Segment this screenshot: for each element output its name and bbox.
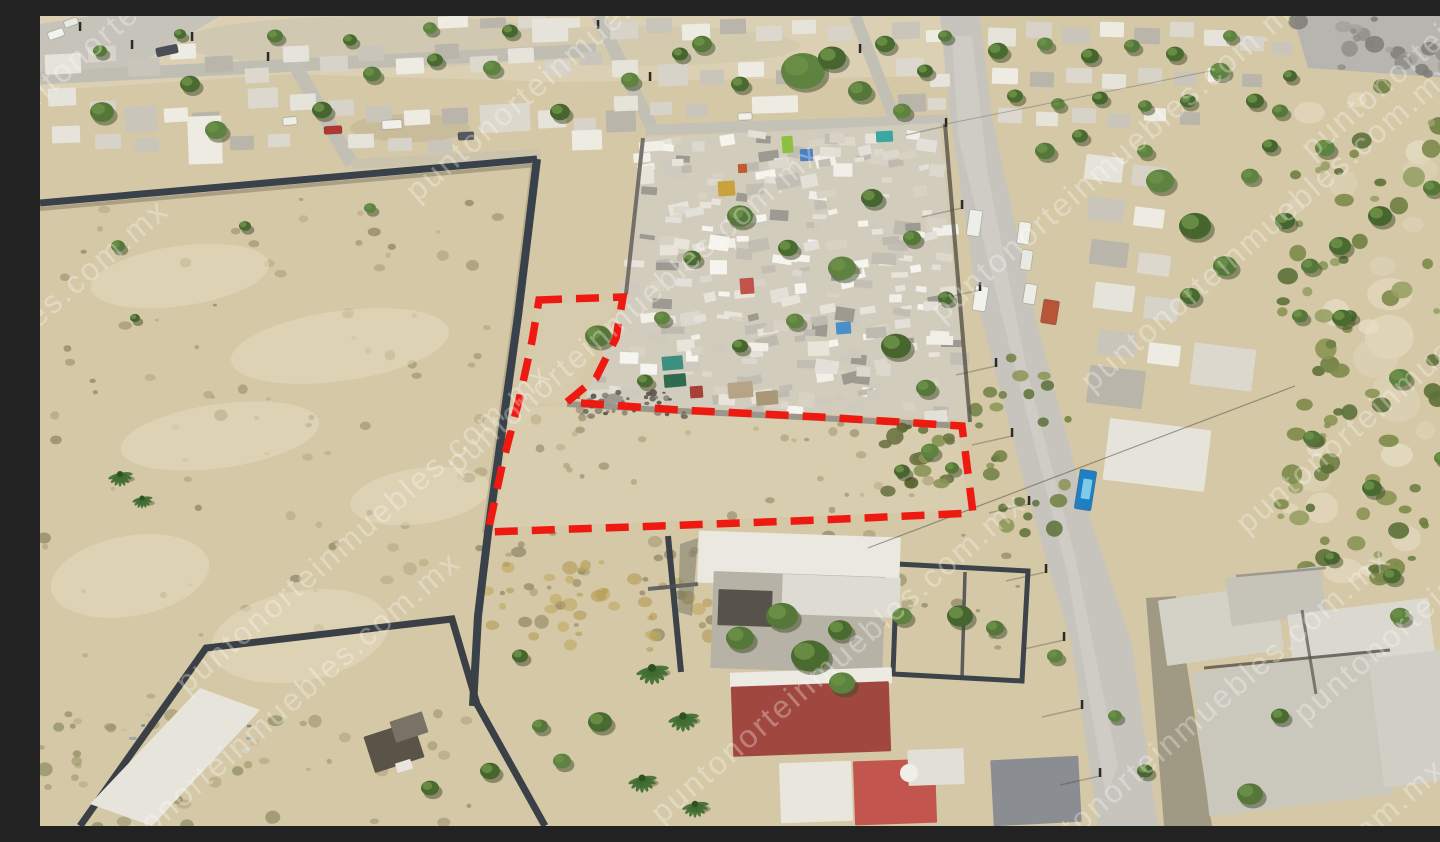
big-building-doorway (717, 589, 772, 627)
aerial-photo-land-parcel: puntonorteinmuebles.com.mxpuntonorteinmu… (40, 16, 1440, 826)
white-house-bottom (779, 761, 853, 823)
water-tank (900, 764, 918, 782)
small-white-structure (907, 748, 964, 786)
aerial-photo-canvas: puntonorteinmuebles.com.mxpuntonorteinmu… (40, 16, 1440, 826)
